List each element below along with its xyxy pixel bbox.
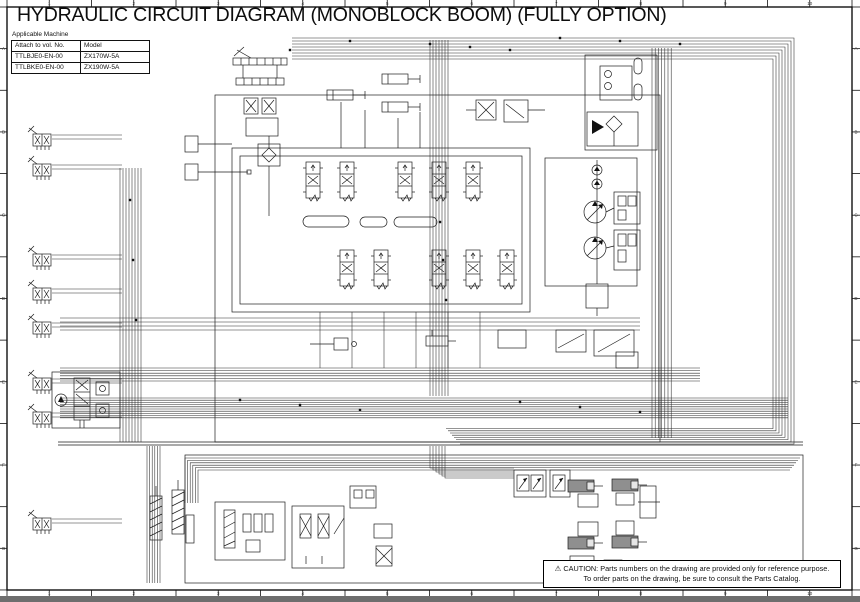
pilot-pump-unit — [587, 58, 642, 146]
bottom-solenoid-blocks — [514, 470, 570, 497]
table-row: TTLBJE0-EN-00 ZX170W-5A — [12, 51, 150, 62]
page-title: HYDRAULIC CIRCUIT DIAGRAM (MONOBLOCK BOO… — [17, 4, 667, 27]
svg-text:F: F — [855, 463, 858, 468]
svg-text:10: 10 — [807, 1, 813, 6]
svg-text:A: A — [854, 46, 857, 51]
model-cell: ZX170W-5A — [81, 51, 150, 62]
svg-text:G: G — [2, 546, 6, 551]
model-cell: ZX190W-5A — [81, 62, 150, 73]
attach-no-cell: TTLBJE0-EN-00 — [12, 51, 81, 62]
svg-text:B: B — [854, 129, 857, 134]
table-caption: Applicable Machine — [12, 31, 150, 39]
svg-text:9: 9 — [724, 1, 727, 6]
bottom-manifolds — [215, 486, 392, 568]
svg-text:8: 8 — [639, 591, 642, 596]
wire-bundles — [52, 37, 800, 583]
svg-text:6: 6 — [470, 591, 473, 596]
mid-right-valves — [310, 330, 638, 368]
attach-no-cell: TTLBKE0-EN-00 — [12, 62, 81, 73]
svg-text:3: 3 — [217, 591, 220, 596]
svg-text:A: A — [2, 46, 5, 51]
svg-text:G: G — [854, 546, 858, 551]
table-row: TTLBKE0-EN-00 ZX190W-5A — [12, 62, 150, 73]
drawing-sheet: 1234567891012345678910ABCDEFGABCDEFG HYD… — [0, 0, 860, 602]
svg-text:10: 10 — [807, 591, 813, 596]
main-control-valve — [303, 102, 517, 289]
svg-text:7: 7 — [555, 591, 558, 596]
pump-unit — [584, 160, 640, 316]
outrigger-cylinders — [568, 479, 647, 549]
col-header-attach: Attach to vol. No. — [12, 40, 81, 51]
caution-note: ⚠CAUTION: Parts numbers on the drawing a… — [543, 560, 841, 588]
svg-text:B: B — [2, 129, 5, 134]
left-bottom-valve-unit — [55, 378, 109, 428]
drawing-enclosures — [52, 55, 803, 583]
caution-line1: ⚠CAUTION: Parts numbers on the drawing a… — [555, 564, 830, 575]
caution-text2: To order parts on the drawing, be sure t… — [583, 574, 800, 584]
svg-text:E: E — [2, 379, 5, 384]
svg-text:9: 9 — [724, 591, 727, 596]
caution-text1: CAUTION: Parts numbers on the drawing ar… — [563, 564, 829, 573]
remote-control-valve-unit — [233, 47, 287, 216]
svg-text:5: 5 — [386, 591, 389, 596]
applicable-machine-table: Applicable Machine Attach to vol. No. Mo… — [11, 31, 150, 74]
svg-text:2: 2 — [132, 591, 135, 596]
col-header-model: Model — [81, 40, 150, 51]
svg-text:F: F — [2, 463, 5, 468]
warning-icon: ⚠ — [555, 564, 562, 573]
svg-text:1: 1 — [48, 591, 51, 596]
svg-text:E: E — [854, 379, 857, 384]
scan-edge-bar — [0, 596, 860, 602]
hydraulic-schematic: 1234567891012345678910ABCDEFGABCDEFG — [0, 0, 860, 602]
svg-text:4: 4 — [301, 591, 304, 596]
